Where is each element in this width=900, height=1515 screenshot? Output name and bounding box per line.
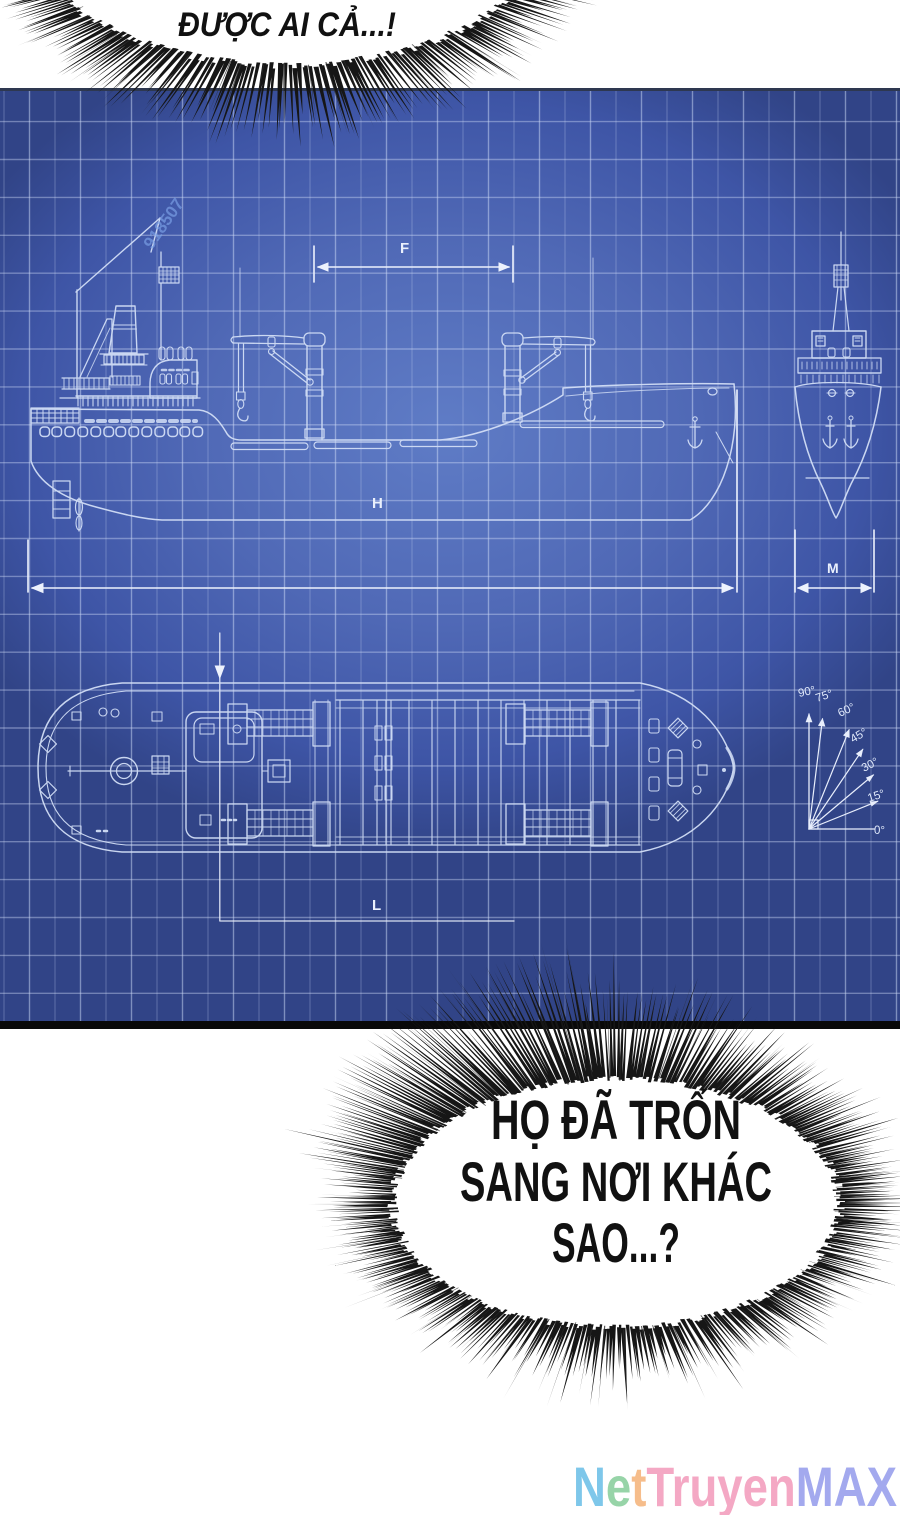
svg-text:ĐƯỢC AI CẢ...!: ĐƯỢC AI CẢ...! (178, 6, 396, 44)
svg-text:NetTruyenMAX: NetTruyenMAX (573, 1455, 897, 1515)
svg-text:SAO...?: SAO...? (552, 1211, 680, 1274)
svg-text:0°: 0° (874, 825, 885, 837)
svg-text:SANG NƠI KHÁC: SANG NƠI KHÁC (460, 1150, 772, 1213)
svg-text:HỌ ĐÃ TRỐN: HỌ ĐÃ TRỐN (491, 1088, 741, 1151)
svg-text:L: L (372, 897, 381, 914)
svg-text:H: H (372, 495, 383, 512)
svg-text:F: F (400, 240, 409, 257)
svg-text:M: M (827, 560, 839, 576)
